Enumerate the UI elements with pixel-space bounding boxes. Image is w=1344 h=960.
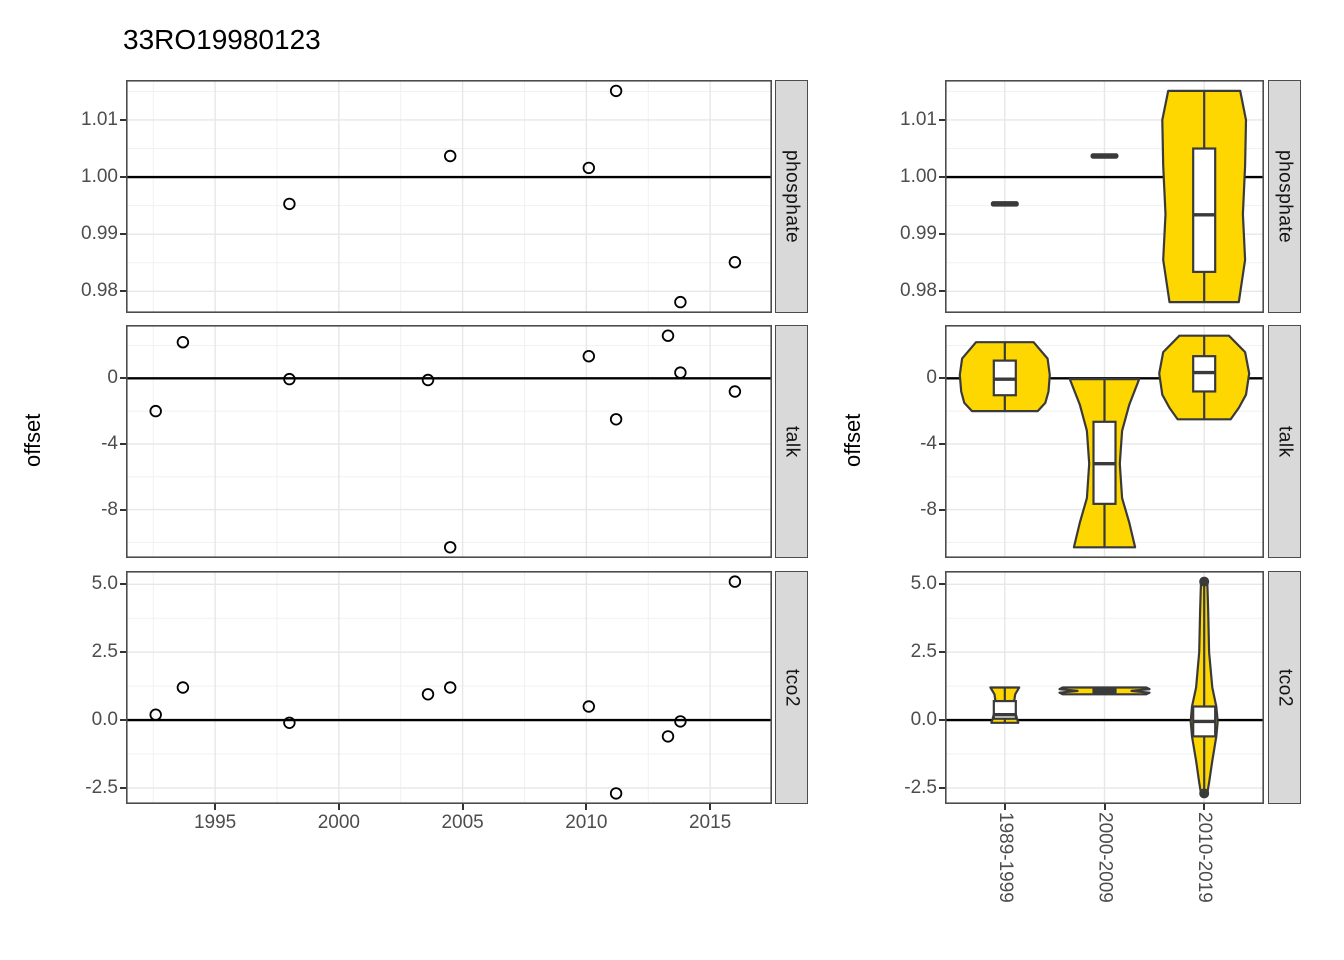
- y-tick-mark: [939, 719, 945, 721]
- gridlines: [126, 80, 772, 313]
- y-tick-mark: [120, 176, 126, 178]
- x-tick-mark: [338, 804, 340, 810]
- y-tick-label: 0.98: [867, 280, 937, 302]
- y-tick-mark: [939, 233, 945, 235]
- y-tick-label: 0.99: [867, 223, 937, 245]
- y-tick-mark: [120, 443, 126, 445]
- gridlines: [126, 325, 772, 558]
- single-value-dash: [991, 201, 1019, 207]
- y-tick-label: -4: [48, 433, 118, 455]
- y-tick-label: 0: [867, 367, 937, 389]
- data-point: [663, 731, 674, 742]
- data-point: [584, 351, 595, 362]
- data-point: [730, 386, 741, 397]
- data-point: [675, 367, 686, 378]
- y-tick-mark: [939, 787, 945, 789]
- y-tick-label: 1.01: [48, 109, 118, 131]
- x-tick-label: 2015: [665, 812, 755, 834]
- y-tick-mark: [939, 119, 945, 121]
- violin-group-1989-1999: [960, 342, 1050, 411]
- x-tick-mark: [709, 804, 711, 810]
- points: [284, 86, 740, 308]
- facet-strip-label: talk: [781, 426, 803, 458]
- panel-left-talk: [126, 325, 772, 558]
- y-tick-label: -8: [48, 499, 118, 521]
- panel-right-tco2: [945, 571, 1264, 804]
- x-tick-label: 2005: [418, 812, 508, 834]
- data-point: [423, 375, 434, 386]
- y-tick-mark: [120, 787, 126, 789]
- panel-right-talk: [945, 325, 1264, 558]
- y-tick-mark: [939, 290, 945, 292]
- data-point: [445, 542, 456, 553]
- y-tick-mark: [120, 651, 126, 653]
- y-tick-mark: [939, 377, 945, 379]
- violin-group-2010-2019: [1191, 577, 1218, 799]
- y-axis-label-right: offset: [840, 370, 866, 510]
- x-tick-label: 2010: [541, 812, 631, 834]
- facet-strip-left-talk: talk: [775, 325, 808, 558]
- data-point: [284, 199, 295, 210]
- facet-strip-label: phosphate: [1274, 150, 1296, 243]
- panel-border: [127, 572, 771, 803]
- y-tick-label: 2.5: [48, 641, 118, 663]
- y-tick-label: -2.5: [867, 777, 937, 799]
- facet-strip-right-phosphate: phosphate: [1268, 80, 1301, 313]
- violin-group-1989-1999: [991, 201, 1019, 207]
- data-point: [675, 716, 686, 727]
- outlier-point: [1199, 577, 1209, 587]
- y-tick-mark: [939, 651, 945, 653]
- violin-group-2010-2019: [1159, 336, 1249, 420]
- y-tick-label: -4: [867, 433, 937, 455]
- data-point: [611, 788, 622, 799]
- y-tick-mark: [120, 377, 126, 379]
- data-point: [730, 576, 741, 587]
- data-point: [178, 682, 189, 693]
- violin-group-1989-1999: [990, 688, 1019, 723]
- data-point: [445, 151, 456, 162]
- y-tick-label: 2.5: [867, 641, 937, 663]
- y-tick-label: 5.0: [867, 573, 937, 595]
- data-point: [445, 682, 456, 693]
- points: [150, 576, 740, 798]
- facet-strip-right-tco2: tco2: [1268, 571, 1301, 804]
- y-tick-mark: [120, 233, 126, 235]
- data-point: [584, 701, 595, 712]
- facet-strip-label: phosphate: [781, 150, 803, 243]
- y-tick-label: 1.01: [867, 109, 937, 131]
- panel-left-phosphate: [126, 80, 772, 313]
- boxplot: [1193, 149, 1215, 272]
- y-tick-mark: [939, 509, 945, 511]
- x-tick-mark: [462, 804, 464, 810]
- y-tick-mark: [120, 509, 126, 511]
- x-tick-label: 2000: [294, 812, 384, 834]
- data-point: [150, 709, 161, 720]
- data-point: [675, 297, 686, 308]
- y-tick-mark: [939, 176, 945, 178]
- y-tick-label: 1.00: [867, 166, 937, 188]
- y-axis-label-left: offset: [20, 370, 46, 510]
- facet-strip-label: talk: [1274, 426, 1296, 458]
- x-tick-mark: [1203, 804, 1205, 810]
- y-tick-label: 0.99: [48, 223, 118, 245]
- y-tick-mark: [939, 443, 945, 445]
- y-tick-label: -2.5: [48, 777, 118, 799]
- x-tick-mark: [1104, 804, 1106, 810]
- y-tick-label: 1.00: [48, 166, 118, 188]
- single-value-dash: [1091, 153, 1119, 159]
- y-tick-mark: [120, 119, 126, 121]
- facet-strip-left-phosphate: phosphate: [775, 80, 808, 313]
- data-point: [663, 330, 674, 341]
- data-point: [584, 163, 595, 174]
- y-tick-mark: [120, 719, 126, 721]
- x-tick-mark: [214, 804, 216, 810]
- faceted-offset-figure: 33RO19980123 offset offset phosphate tal…: [0, 0, 1344, 960]
- x-category-label: 2000-2009: [1093, 812, 1117, 952]
- plot-title: 33RO19980123: [123, 24, 321, 56]
- y-tick-label: 0.0: [48, 709, 118, 731]
- y-tick-label: 0: [48, 367, 118, 389]
- facet-strip-label: tco2: [781, 669, 803, 707]
- x-tick-mark: [1004, 804, 1006, 810]
- data-point: [611, 86, 622, 97]
- violin-group-2000-2009: [1060, 688, 1150, 695]
- y-tick-mark: [120, 583, 126, 585]
- outlier-point: [1199, 788, 1209, 798]
- panel-border: [127, 81, 771, 312]
- x-category-label: 2010-2019: [1192, 812, 1216, 952]
- x-tick-mark: [585, 804, 587, 810]
- facet-strip-right-talk: talk: [1268, 325, 1301, 558]
- panel-border: [127, 326, 771, 557]
- data-point: [611, 414, 622, 425]
- y-tick-label: 5.0: [48, 573, 118, 595]
- points: [150, 330, 740, 552]
- data-point: [423, 689, 434, 700]
- panel-right-phosphate: [945, 80, 1264, 313]
- y-tick-label: 0.0: [867, 709, 937, 731]
- facet-strip-label: tco2: [1274, 669, 1296, 707]
- gridlines: [126, 571, 772, 804]
- y-tick-mark: [939, 583, 945, 585]
- y-tick-mark: [120, 290, 126, 292]
- y-tick-label: 0.98: [48, 280, 118, 302]
- panel-left-tco2: [126, 571, 772, 804]
- violin-group-2000-2009: [1070, 379, 1139, 547]
- violin-group-2000-2009: [1091, 153, 1119, 159]
- x-tick-label: 1995: [170, 812, 260, 834]
- violin-group-2010-2019: [1162, 91, 1246, 302]
- x-category-label: 1989-1999: [993, 812, 1017, 952]
- y-tick-label: -8: [867, 499, 937, 521]
- facet-strip-left-tco2: tco2: [775, 571, 808, 804]
- data-point: [730, 257, 741, 268]
